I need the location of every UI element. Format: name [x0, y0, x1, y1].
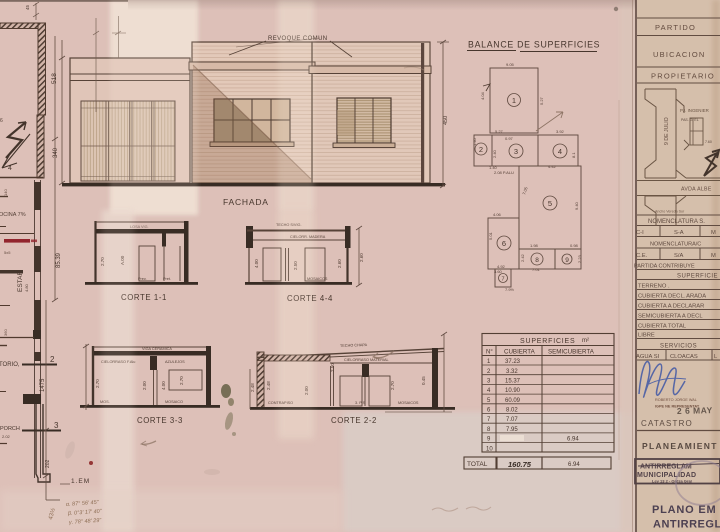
svg-text:7.95: 7.95 [506, 427, 518, 433]
svg-text:Prev.: Prev. [138, 277, 147, 281]
svg-text:43½: 43½ [47, 507, 57, 520]
svg-text:7.9½: 7.9½ [505, 287, 515, 292]
svg-text:7: 7 [487, 417, 491, 423]
svg-text:AGUA SI: AGUA SI [636, 354, 660, 360]
svg-text:37.23: 37.23 [505, 359, 521, 365]
svg-text:CIELORRASO MATERIAL: CIELORRASO MATERIAL [344, 358, 389, 362]
svg-text:8.1: 8.1 [571, 152, 576, 158]
svg-text:518: 518 [51, 73, 58, 84]
svg-text:3.92: 3.92 [556, 129, 565, 134]
svg-text:6: 6 [0, 118, 3, 124]
svg-text:9: 9 [565, 257, 569, 264]
svg-text:0.97: 0.97 [505, 136, 514, 141]
svg-text:Pret.: Pret. [163, 277, 171, 281]
svg-text:2.70: 2.70 [179, 376, 184, 385]
svg-text:6.94: 6.94 [567, 437, 579, 443]
svg-text:2.60: 2.60 [337, 259, 342, 268]
svg-text:ROBERTO JORGE WAL: ROBERTO JORGE WAL [655, 398, 697, 402]
svg-text:CORTE 3-3: CORTE 3-3 [137, 416, 183, 425]
svg-text:3: 3 [54, 421, 59, 430]
svg-text:2.48: 2.48 [250, 383, 255, 392]
svg-text:2.02: 2.02 [2, 434, 11, 439]
svg-text:N°: N° [486, 350, 493, 356]
svg-text:VIGA CERAMICA: VIGA CERAMICA [142, 347, 172, 351]
svg-text:10: 10 [486, 447, 493, 453]
svg-text:m²: m² [582, 338, 589, 344]
svg-text:FACHADA: FACHADA [223, 197, 269, 207]
svg-text:2.40: 2.40 [492, 149, 497, 158]
svg-text:10.90: 10.90 [505, 388, 521, 394]
svg-text:15.37: 15.37 [505, 379, 521, 385]
svg-text:PLANEAMIENT: PLANEAMIENT [642, 441, 718, 451]
svg-text:60.09: 60.09 [505, 398, 521, 404]
svg-text:TECHO CHAPA: TECHO CHAPA [340, 343, 368, 348]
svg-text:9: 9 [487, 437, 491, 443]
svg-text:PROPIETARIO: PROPIETARIO [651, 72, 715, 81]
svg-text:1.EM: 1.EM [71, 478, 90, 485]
svg-text:0.45: 0.45 [421, 376, 426, 385]
svg-text:PJ. INGENIER: PJ. INGENIER [680, 108, 709, 113]
svg-text:2.70: 2.70 [390, 381, 395, 390]
svg-text:TOTAL: TOTAL [467, 461, 488, 468]
svg-text:CLOACAS: CLOACAS [670, 354, 698, 360]
svg-text:3. PIS: 3. PIS [355, 401, 366, 405]
svg-text:UBICACION: UBICACION [653, 50, 705, 59]
svg-text:7.01: 7.01 [532, 267, 541, 272]
svg-text:340: 340 [53, 147, 59, 158]
svg-text:2: 2 [487, 369, 491, 375]
svg-text:6: 6 [487, 408, 491, 414]
svg-text:9.05: 9.05 [506, 62, 515, 67]
svg-text:C-I: C-I [636, 230, 644, 236]
svg-text:160.75: 160.75 [508, 460, 532, 469]
svg-text:CUBIERTA A DECLARAR: CUBIERTA A DECLARAR [638, 304, 704, 310]
svg-text:CUBIERTA TOTAL: CUBIERTA TOTAL [638, 324, 687, 330]
svg-text:1.40: 1.40 [472, 137, 477, 146]
svg-text:0.98: 0.98 [570, 243, 579, 248]
svg-text:α. 87° 56' 45": α. 87° 56' 45" [66, 500, 100, 508]
svg-text:5.27: 5.27 [539, 96, 544, 105]
svg-text:5.27: 5.27 [495, 129, 504, 134]
svg-text:202: 202 [45, 459, 51, 468]
svg-text:2.70: 2.70 [95, 379, 100, 388]
svg-text:6.94: 6.94 [568, 462, 580, 468]
svg-text:3.32: 3.32 [506, 369, 518, 375]
svg-text:8: 8 [487, 427, 491, 433]
svg-text:MOSAICOS: MOSAICOS [398, 401, 419, 405]
svg-text:140: 140 [3, 189, 8, 196]
svg-text:SEMICUBIERTA A DECL: SEMICUBIERTA A DECL [638, 314, 703, 320]
svg-text:CUBIERTA: CUBIERTA [504, 349, 536, 356]
svg-text:SUPERFICIE: SUPERFICIE [677, 274, 718, 280]
svg-text:BALANCE DE SUPERFICIES: BALANCE DE SUPERFICIES [468, 40, 600, 50]
svg-text:3: 3 [514, 147, 518, 156]
svg-text:2.00: 2.00 [142, 381, 147, 390]
svg-text:CORTE 2-2: CORTE 2-2 [331, 416, 377, 425]
svg-text:ESTAR: ESTAR [17, 271, 24, 292]
svg-text:4.80: 4.80 [24, 283, 29, 292]
svg-text:2: 2 [50, 355, 55, 364]
svg-text:LIBRE: LIBRE [638, 333, 655, 339]
svg-text:PARTIDO: PARTIDO [655, 23, 696, 32]
svg-text:450: 450 [443, 116, 449, 125]
svg-text:CATASTRO: CATASTRO [641, 419, 693, 428]
svg-text:3: 3 [487, 379, 491, 385]
svg-text:AVDA ALBE: AVDA ALBE [681, 187, 712, 193]
svg-text:9.40: 9.40 [574, 201, 579, 210]
svg-text:1.98: 1.98 [530, 243, 539, 248]
svg-text:2: 2 [479, 145, 483, 154]
svg-text:4: 4 [558, 147, 562, 156]
svg-text:4.00: 4.00 [254, 259, 259, 268]
svg-text:8: 8 [535, 257, 539, 264]
svg-text:8.02: 8.02 [506, 408, 518, 414]
svg-text:3.60: 3.60 [494, 269, 503, 274]
svg-text:4.04: 4.04 [480, 91, 485, 100]
svg-text:C.E.: C.E. [636, 253, 648, 259]
svg-text:7: 7 [501, 277, 504, 283]
svg-text:2 6 MAY: 2 6 MAY [677, 405, 713, 416]
svg-text:4.42: 4.42 [548, 164, 557, 169]
svg-text:360: 360 [3, 329, 8, 336]
svg-text:7.60: 7.60 [705, 140, 712, 144]
svg-text:2.23: 2.23 [577, 254, 582, 263]
svg-text:2.50: 2.50 [330, 363, 335, 372]
svg-text:TERRENO .: TERRENO . [638, 284, 670, 290]
svg-text:Ancho Vereda Sur: Ancho Vereda Sur [655, 210, 685, 214]
svg-text:M: M [711, 230, 716, 236]
svg-text:ANTIRREGL: ANTIRREGL [653, 519, 720, 531]
svg-text:PAS. G. EL: PAS. G. EL [681, 118, 699, 122]
svg-text:2.42: 2.42 [520, 253, 525, 262]
svg-text:MOSAICO: MOSAICO [165, 400, 183, 404]
svg-text:SERVICIOS: SERVICIOS [660, 344, 697, 350]
svg-text:5.01: 5.01 [488, 231, 493, 240]
svg-text:S/A: S/A [674, 253, 683, 259]
svg-text:2.60: 2.60 [359, 253, 364, 262]
svg-text:5: 5 [487, 398, 491, 404]
svg-text:AZULEJOS: AZULEJOS [165, 360, 185, 364]
svg-text:5: 5 [548, 199, 552, 208]
svg-text:4.00: 4.00 [161, 381, 166, 390]
svg-text:4.06: 4.06 [493, 212, 502, 217]
svg-text:2.48: 2.48 [266, 381, 271, 390]
svg-text:2.08 P.ALU: 2.08 P.ALU [494, 170, 514, 175]
svg-text:9 DE JULIO: 9 DE JULIO [664, 117, 670, 145]
svg-text:PARTIDA CONTRIBUYE: PARTIDA CONTRIBUYE [634, 264, 695, 270]
svg-text:45: 45 [25, 4, 30, 10]
svg-text:M: M [711, 253, 716, 259]
svg-text:SEMICUBIERTA: SEMICUBIERTA [548, 349, 595, 356]
svg-text:β. 0°3' 17' 40": β. 0°3' 17' 40" [67, 509, 103, 517]
svg-text:4: 4 [487, 388, 491, 394]
svg-text:1: 1 [487, 359, 491, 365]
svg-text:TORIO,: TORIO, [0, 362, 20, 368]
svg-text:CUBIERTA DEC L. ARADA: CUBIERTA DEC L. ARADA [638, 294, 706, 300]
svg-text:Ley 13 2 - Ordza Gral: Ley 13 2 - Ordza Gral [652, 479, 692, 484]
svg-text:PLANO EM: PLANO EM [652, 504, 716, 516]
svg-text:PORCH: PORCH [0, 426, 20, 432]
svg-text:L: L [714, 354, 718, 360]
svg-text:NOMENCLATURA S.: NOMENCLATURA S. [648, 219, 705, 225]
svg-text:SUPERFICIES: SUPERFICIES [520, 338, 575, 345]
svg-text:7.05: 7.05 [521, 186, 529, 196]
svg-text:7.07: 7.07 [506, 417, 518, 423]
svg-text:6: 6 [502, 239, 506, 248]
svg-text:NOMENCLATURA/C: NOMENCLATURA/C [650, 242, 701, 248]
svg-text:1: 1 [512, 96, 516, 105]
svg-text:γ. 78° 48' 29": γ. 78° 48' 29" [69, 518, 103, 526]
svg-text:85.39: 85.39 [56, 252, 62, 268]
svg-text:1475: 1475 [40, 378, 46, 392]
svg-text:OCINA 7%: OCINA 7% [0, 212, 26, 218]
svg-text:5x5: 5x5 [4, 250, 11, 255]
svg-text:S-A: S-A [674, 230, 684, 236]
